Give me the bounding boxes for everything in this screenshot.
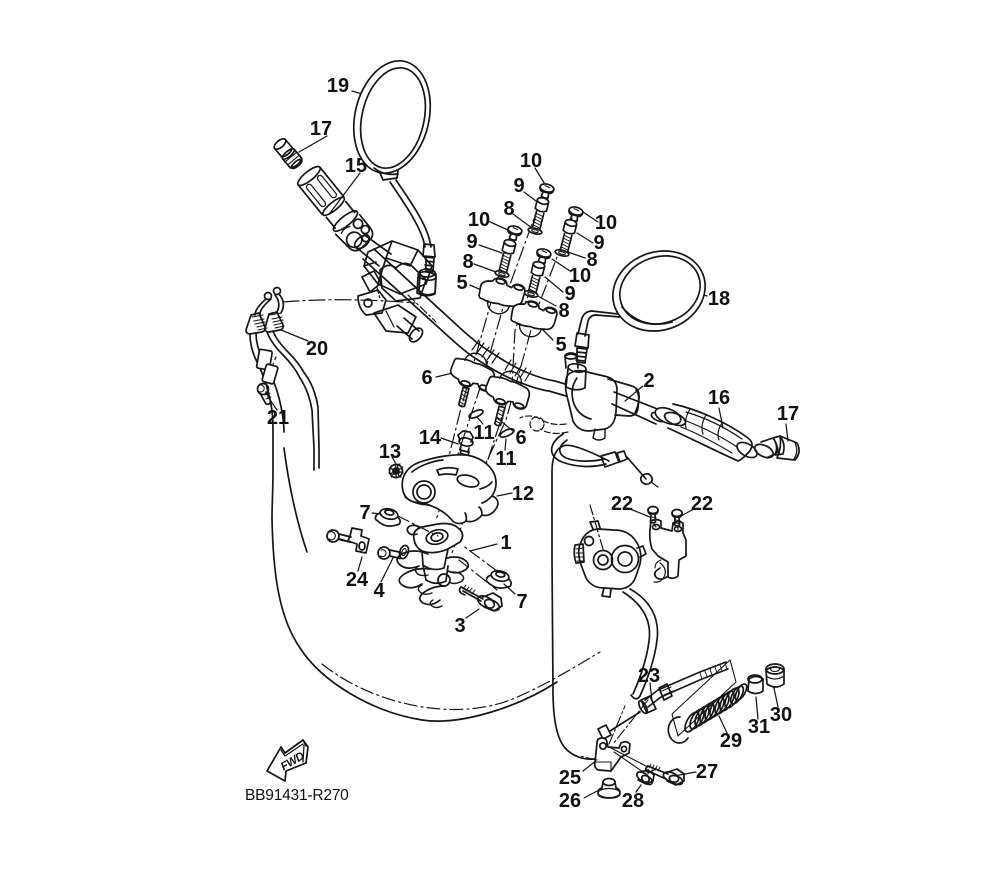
svg-text:25: 25 [559,767,581,789]
svg-text:6: 6 [421,367,432,389]
svg-text:10: 10 [468,209,490,231]
svg-text:21: 21 [267,407,289,429]
svg-text:14: 14 [419,427,442,449]
svg-text:22: 22 [611,493,633,515]
svg-text:26: 26 [559,790,581,812]
svg-text:10: 10 [520,150,542,172]
svg-text:29: 29 [720,730,742,752]
svg-text:5: 5 [555,334,566,356]
svg-text:13: 13 [379,441,401,463]
svg-text:17: 17 [310,118,332,140]
svg-text:7: 7 [516,591,527,613]
svg-text:11: 11 [473,422,494,444]
svg-text:8: 8 [558,300,569,322]
svg-text:22: 22 [691,493,713,515]
svg-text:18: 18 [708,288,730,310]
svg-text:4: 4 [373,580,385,602]
svg-text:19: 19 [327,75,349,97]
svg-text:24: 24 [346,569,369,591]
svg-text:9: 9 [466,231,477,253]
svg-text:30: 30 [770,704,792,726]
svg-text:27: 27 [696,761,718,783]
svg-text:28: 28 [622,790,644,812]
svg-text:2: 2 [643,370,654,392]
svg-text:16: 16 [708,387,730,409]
svg-text:11: 11 [495,448,516,470]
svg-text:1: 1 [500,532,511,554]
svg-text:6: 6 [515,427,526,449]
svg-text:7: 7 [359,502,370,524]
svg-text:17: 17 [777,403,799,425]
svg-text:10: 10 [595,212,617,234]
svg-text:23: 23 [638,665,660,687]
svg-text:5: 5 [456,272,467,294]
svg-text:8: 8 [503,198,514,220]
svg-text:12: 12 [512,483,534,505]
svg-text:9: 9 [513,175,524,197]
svg-text:31: 31 [748,716,770,738]
svg-text:3: 3 [454,615,465,637]
svg-text:BB91431-R270: BB91431-R270 [245,787,349,804]
svg-text:8: 8 [462,251,473,273]
svg-text:20: 20 [306,338,328,360]
